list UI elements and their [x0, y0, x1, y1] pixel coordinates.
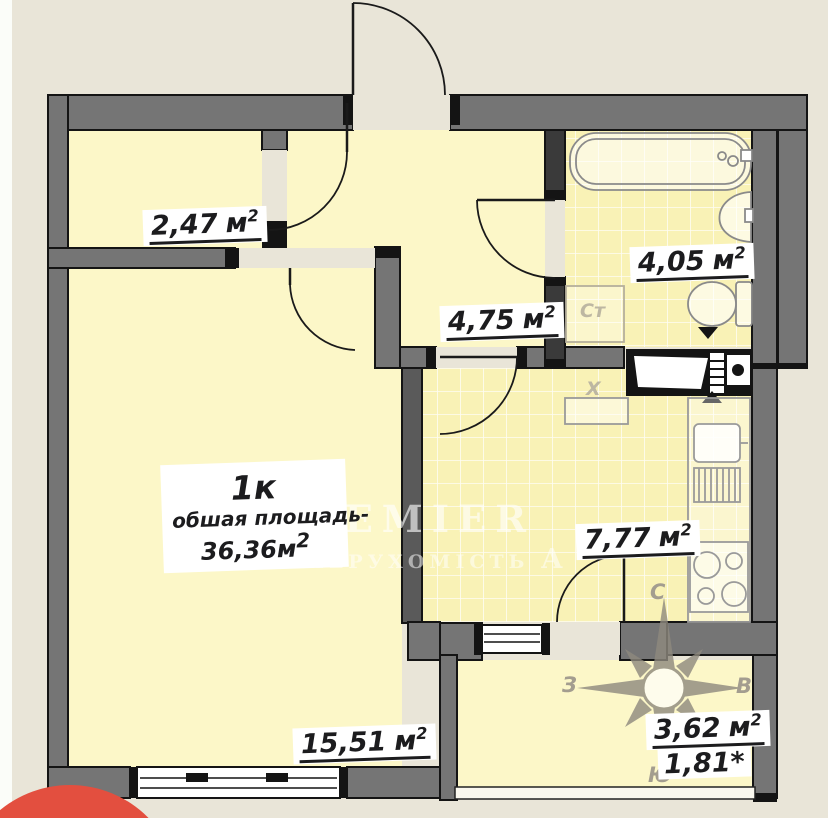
wall-top-left — [48, 95, 353, 130]
unit-title-block: 1к обшая площадь- 36,36м2 — [160, 459, 349, 573]
living-room-area-label: 15,51м2 — [292, 724, 436, 765]
balcony-window — [482, 625, 542, 653]
ventilation-shaft — [626, 349, 752, 403]
balcony-glazing-band — [455, 787, 755, 799]
bathroom-area-label: 4,05м2 — [629, 243, 754, 283]
opening-entrance — [353, 95, 450, 130]
compass-east-label: В — [736, 674, 752, 698]
living-room-window — [137, 767, 340, 798]
opening-balcony — [550, 622, 620, 655]
floor-plan-page: PREMIER НЕРУХОМІСТЬ А 2,47м2 4,05м2 4,75… — [0, 0, 828, 818]
bathtub — [570, 133, 752, 190]
vent-dot — [732, 364, 744, 376]
washing-machine-label: Ст — [580, 300, 605, 322]
right-wall-step-line — [752, 363, 807, 368]
opening-living — [287, 248, 375, 268]
vent-duct — [634, 356, 708, 389]
right-wall-divider-line — [776, 130, 779, 368]
kitchen-area-label: 7,77м2 — [575, 520, 700, 560]
wall-top-right — [450, 95, 807, 130]
cap-storage-wall-end — [225, 248, 239, 268]
compass-west-label: З — [562, 673, 577, 697]
storage-area-label: 2,47м2 — [142, 206, 267, 246]
wall-storage-right-stub — [262, 130, 287, 150]
cap-balcony-right-bottom — [753, 793, 777, 802]
cap-bath-bot2 — [545, 359, 565, 368]
cap-bath-stub — [545, 190, 565, 200]
toilet — [688, 282, 752, 326]
wall-hall-living-divider — [375, 247, 400, 368]
wall-storage-bottom — [48, 248, 235, 268]
jamb-entrance-right — [450, 95, 460, 125]
wall-right-lower — [752, 368, 777, 655]
wall-balcony-left — [440, 655, 457, 800]
balcony-reduced-area-label: 1,81* — [658, 746, 752, 779]
fridge-label: Х — [586, 378, 601, 400]
wall-window-pier-se — [347, 767, 440, 798]
hallway-area-label: 4,75м2 — [439, 302, 564, 342]
wall-right-upper — [752, 130, 807, 368]
wall-living-kitchen-divider — [402, 347, 422, 623]
cap-divider-top — [375, 247, 400, 258]
unit-type-label: 1к — [170, 467, 336, 509]
balcony-area-label: 3,62м2 — [645, 710, 770, 750]
opening-bathroom — [545, 200, 565, 277]
jamb-balcony-window-right — [542, 623, 550, 655]
kitchen-sink — [694, 424, 748, 462]
unit-total-area: 36,36м2 — [173, 528, 339, 566]
cap-hall-b — [517, 347, 527, 368]
vent-ladder — [710, 353, 724, 393]
wall-bath-left-top — [545, 130, 565, 200]
wall-hall-south-b — [517, 347, 624, 368]
floor-plan-canvas — [0, 0, 828, 818]
left-edge-strip — [0, 0, 12, 818]
jamb-balcony-window-left — [474, 623, 482, 655]
wall-pier-sw-kitchen — [408, 622, 440, 660]
watermark-logo-mark: А — [541, 544, 563, 575]
cap-hall-a — [426, 347, 436, 368]
wall-left — [48, 95, 68, 767]
kitchen-counter-top — [565, 398, 628, 424]
compass-north-label: С — [650, 580, 665, 604]
